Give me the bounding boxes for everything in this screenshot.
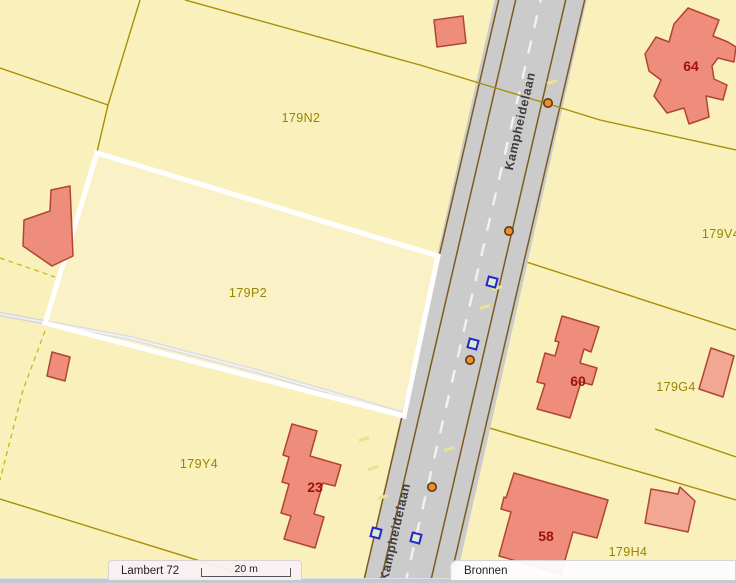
blue-square-marker[interactable] (370, 527, 381, 538)
parcel-label: 179G4 (656, 380, 696, 394)
building-number-label: 23 (307, 479, 323, 495)
parcel-label: 179Y4 (180, 457, 218, 471)
sources-button[interactable]: Bronnen (464, 565, 507, 577)
map-viewer: 179N2179P2179V4179G4179Y4179H464602358Ka… (0, 0, 736, 583)
orange-point-marker[interactable] (544, 99, 552, 107)
blue-square-marker[interactable] (467, 338, 478, 349)
building-number-label: 60 (570, 373, 586, 389)
blue-square-marker[interactable] (486, 276, 497, 287)
building-number-label: 64 (683, 58, 699, 74)
status-bar-right: Bronnen (450, 560, 736, 580)
orange-point-marker[interactable] (428, 483, 436, 491)
status-bar-left: Lambert 72 20 m (108, 560, 302, 580)
parcel-label: 179V4 (702, 227, 736, 241)
parcel-label: 179H4 (609, 545, 648, 559)
orange-point-marker[interactable] (466, 356, 474, 364)
building-shed-west[interactable] (47, 352, 70, 381)
parcel-label: 179N2 (282, 111, 321, 125)
map-canvas[interactable]: 179N2179P2179V4179G4179Y4179H464602358Ka… (0, 0, 736, 583)
blue-square-marker[interactable] (410, 532, 421, 543)
parcel-label: 179P2 (229, 286, 267, 300)
building-number-label: 58 (538, 528, 554, 544)
scale-bar: 20 m (201, 563, 291, 579)
building-shed-north[interactable] (434, 16, 466, 47)
projection-label: Lambert 72 (121, 565, 179, 577)
scale-bar-label: 20 m (201, 564, 291, 575)
outbuilding-southeast[interactable] (645, 487, 695, 532)
orange-point-marker[interactable] (505, 227, 513, 235)
